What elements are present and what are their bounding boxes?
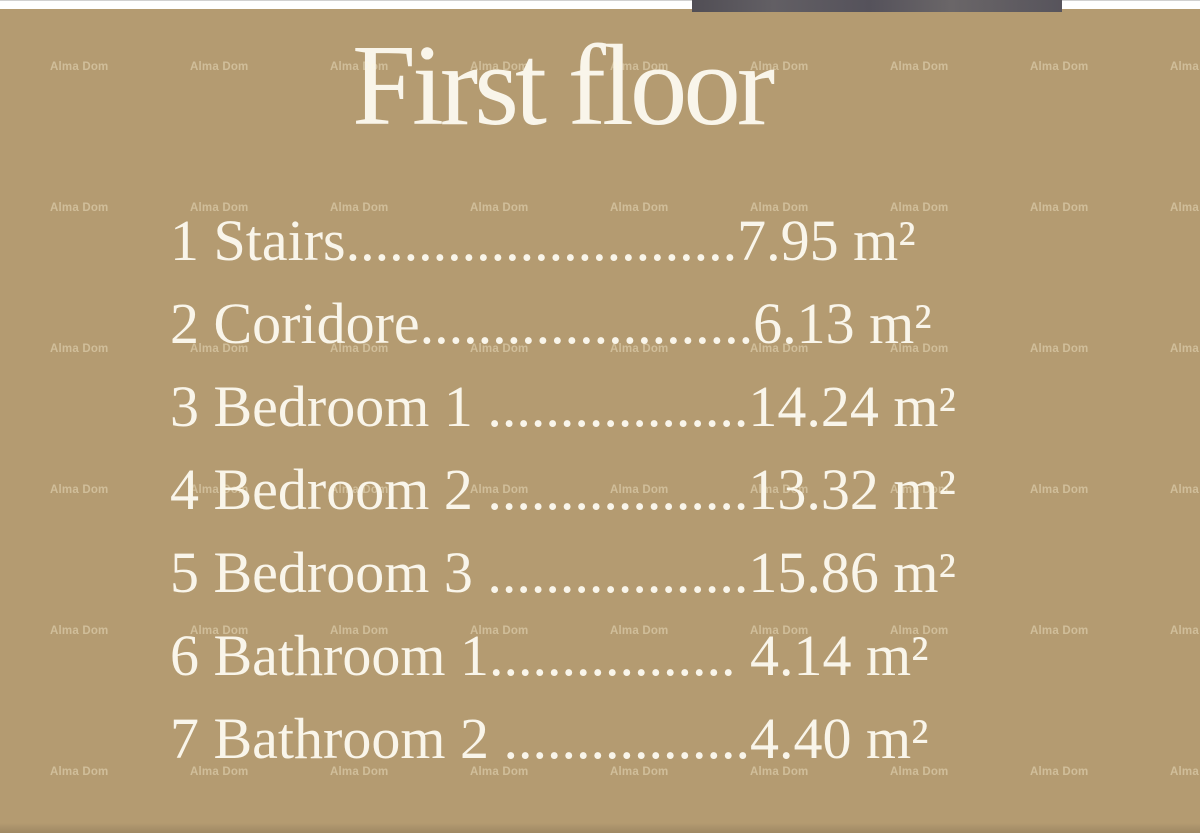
watermark-text: Alma Dom	[1170, 343, 1200, 355]
room-label: 4 Bedroom 2	[170, 457, 487, 522]
room-row-bedroom-1: 3 Bedroom 1 ..................14.24 m²	[170, 365, 956, 448]
watermark-text: Alma Dom	[50, 484, 108, 496]
room-label: 2 Coridore	[170, 291, 420, 356]
bottom-shade	[0, 823, 1200, 833]
room-area: 14.24 m²	[748, 374, 956, 439]
watermark-text: Alma Dom	[1170, 202, 1200, 214]
room-row-coridore: 2 Coridore.......................6.13 m²	[170, 282, 956, 365]
room-row-bathroom-1: 6 Bathroom 1................. 4.14 m²	[170, 614, 956, 697]
watermark-text: Alma Dom	[890, 61, 948, 73]
room-area: 15.86 m²	[748, 540, 956, 605]
leader-dots: ..................	[487, 374, 748, 439]
room-row-bedroom-3: 5 Bedroom 3 ..................15.86 m²	[170, 531, 956, 614]
watermark-text: Alma Dom	[50, 343, 108, 355]
room-label: 6 Bathroom 1	[170, 623, 489, 688]
room-label: 1 Stairs	[170, 208, 346, 273]
watermark-text: Alma Dom	[1030, 484, 1088, 496]
watermark-text: Alma Dom	[1170, 625, 1200, 637]
room-row-bathroom-2: 7 Bathroom 2 .................4.40 m²	[170, 697, 956, 780]
room-row-stairs: 1 Stairs...........................7.95 …	[170, 199, 956, 282]
watermark-text: Alma Dom	[1030, 625, 1088, 637]
room-label: 3 Bedroom 1	[170, 374, 487, 439]
watermark-text: Alma Dom	[50, 61, 108, 73]
leader-dots: ..................	[487, 540, 748, 605]
watermark-text: Alma Dom	[1030, 766, 1088, 778]
room-area: 4.40 m²	[750, 706, 929, 771]
page-title: First floor	[352, 28, 771, 143]
room-area: 7.95 m²	[737, 208, 916, 273]
leader-dots: .................	[489, 623, 736, 688]
floor-plan-flyer-page: First floor 1 Stairs....................…	[0, 0, 1200, 833]
watermark-text: Alma Dom	[1170, 484, 1200, 496]
leader-dots: ..................	[487, 457, 748, 522]
watermark-text: Alma Dom	[1170, 61, 1200, 73]
room-row-bedroom-2: 4 Bedroom 2 ..................13.32 m²	[170, 448, 956, 531]
room-label: 7 Bathroom 2	[170, 706, 503, 771]
room-area: 4.14 m²	[735, 623, 928, 688]
photo-edge-sliver	[692, 0, 1062, 12]
watermark-text: Alma Dom	[1030, 343, 1088, 355]
room-area: 13.32 m²	[748, 457, 956, 522]
page-edge-white-right	[1062, 0, 1200, 9]
page-edge-white-left	[0, 0, 692, 9]
watermark-text: Alma Dom	[50, 766, 108, 778]
room-label: 5 Bedroom 3	[170, 540, 487, 605]
leader-dots: ...........................	[346, 208, 738, 273]
watermark-text: Alma Dom	[190, 61, 248, 73]
watermark-text: Alma Dom	[1030, 202, 1088, 214]
watermark-text: Alma Dom	[50, 202, 108, 214]
watermark-text: Alma Dom	[1030, 61, 1088, 73]
leader-dots: .................	[503, 706, 750, 771]
room-area: 6.13 m²	[753, 291, 932, 356]
leader-dots: .......................	[420, 291, 754, 356]
top-strip	[0, 0, 1200, 12]
watermark-text: Alma Dom	[1170, 766, 1200, 778]
watermark-text: Alma Dom	[50, 625, 108, 637]
room-list: 1 Stairs...........................7.95 …	[170, 199, 956, 780]
